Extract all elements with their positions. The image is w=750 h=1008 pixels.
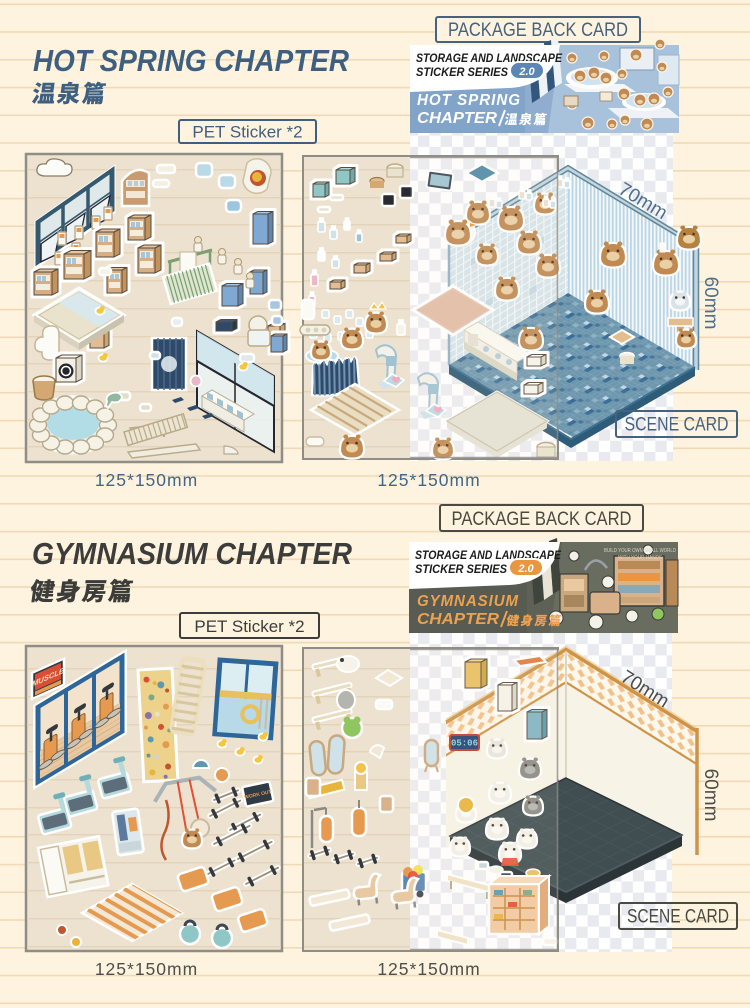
svg-text:PET Sticker *2: PET Sticker *2	[192, 123, 302, 142]
svg-text:HOT SPRING CHAPTER: HOT SPRING CHAPTER	[33, 43, 350, 78]
svg-text:60mm: 60mm	[700, 769, 721, 822]
svg-text:125*150mm: 125*150mm	[95, 470, 198, 490]
svg-text:SCENE CARD: SCENE CARD	[627, 907, 729, 928]
svg-text:PET Sticker *2: PET Sticker *2	[194, 617, 304, 636]
svg-text:GYMNASIUM: GYMNASIUM	[417, 593, 519, 610]
svg-text:PACKAGE BACK CARD: PACKAGE BACK CARD	[452, 509, 632, 530]
svg-text:125*150mm: 125*150mm	[377, 959, 480, 979]
svg-text:CHAPTER: CHAPTER	[417, 110, 498, 127]
svg-text:BUILD YOUR OWN SMALL WORLD: BUILD YOUR OWN SMALL WORLD	[604, 548, 676, 554]
svg-text:2.0: 2.0	[517, 563, 534, 575]
svg-text:HOT SPRING: HOT SPRING	[417, 92, 521, 109]
svg-text:60mm: 60mm	[700, 277, 721, 330]
svg-text:PACKAGE BACK CARD: PACKAGE BACK CARD	[448, 20, 628, 41]
svg-text:WITH YOUR HANDS: WITH YOUR HANDS	[618, 555, 662, 561]
svg-text:CHAPTER: CHAPTER	[417, 611, 499, 628]
svg-text:125*150mm: 125*150mm	[377, 470, 480, 490]
svg-text:SCENE CARD: SCENE CARD	[625, 415, 729, 436]
svg-text:STICKER SERIES: STICKER SERIES	[415, 564, 507, 576]
svg-text:2.0: 2.0	[518, 66, 535, 78]
svg-text:GYMNASIUM CHAPTER: GYMNASIUM CHAPTER	[32, 536, 353, 571]
svg-text:125*150mm: 125*150mm	[95, 959, 198, 979]
svg-text:STICKER SERIES: STICKER SERIES	[416, 67, 508, 79]
